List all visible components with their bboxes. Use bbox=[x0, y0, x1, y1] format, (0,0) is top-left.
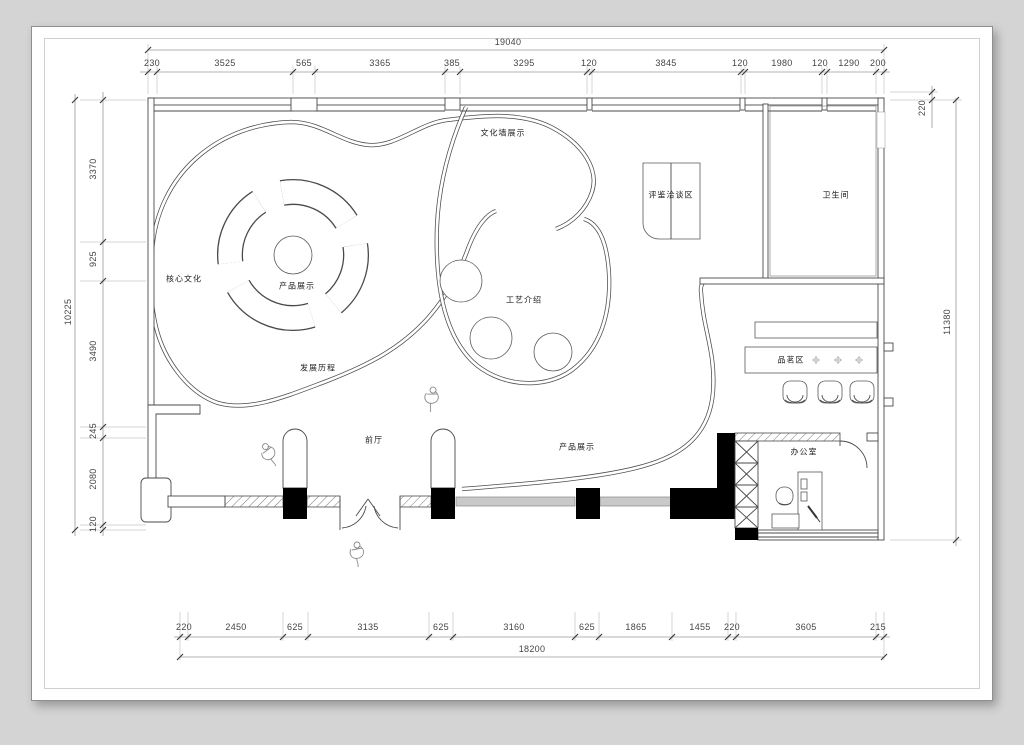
circular-display-feature bbox=[220, 182, 366, 328]
office-door-arc bbox=[840, 441, 867, 468]
entrance-door bbox=[340, 496, 400, 530]
person-icon bbox=[422, 386, 440, 413]
person-icon bbox=[258, 441, 281, 469]
tea-bar bbox=[745, 322, 877, 403]
office-furniture bbox=[772, 441, 867, 530]
stool-icon bbox=[850, 381, 874, 403]
floorplan-drawing bbox=[0, 0, 1024, 745]
stool-icon bbox=[818, 381, 842, 403]
lattice-pillar bbox=[735, 441, 758, 540]
app-background: 19040 230 3525 565 3365 385 3295 120 384… bbox=[0, 0, 1024, 745]
tasting-table bbox=[643, 163, 700, 239]
person-icon bbox=[350, 542, 363, 567]
stool-icon bbox=[783, 381, 807, 403]
office-chair-icon bbox=[776, 487, 793, 505]
craft-area-circles bbox=[440, 260, 572, 371]
